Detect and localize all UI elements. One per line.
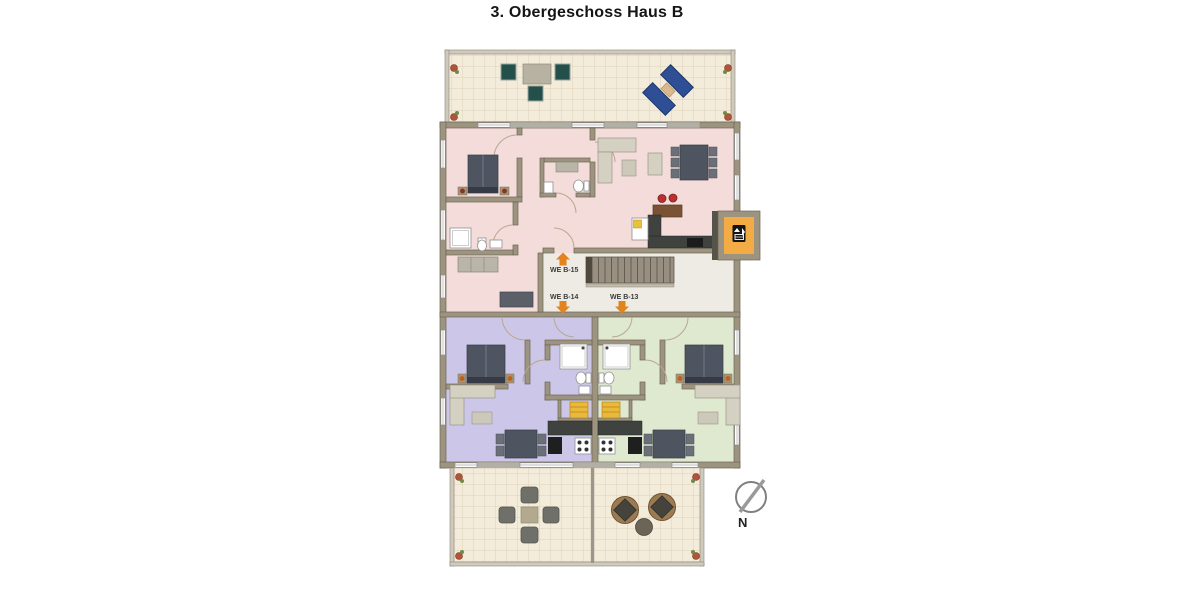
coffee-table [472,412,492,424]
stair-railing [586,284,674,287]
stove [687,238,703,247]
sofa [598,138,636,152]
kitchen-counter [548,421,592,435]
terrace-wall [731,50,735,125]
stairs [586,257,674,283]
floor-plan: WE B-15 WE B-14 WE B-13 [0,0,1200,600]
laundry [602,402,620,418]
terrace-wall [445,50,449,125]
fridge [548,437,562,454]
bar-stool [658,195,666,203]
washbasin [600,386,611,394]
kitchen-counter [648,236,722,248]
stove [599,438,615,454]
dresser [500,292,533,307]
floor-plan-page: 3. Obergeschoss Haus B [0,0,1200,600]
toilet [584,181,589,191]
bar-stool [669,194,677,202]
sofa [450,385,495,398]
north-label: N [738,515,747,530]
balcony-divider [591,468,594,563]
bathtub [450,228,471,248]
terrace-wall [445,50,735,54]
fridge [628,437,642,454]
dining-table [680,145,708,180]
coffee-table [622,160,636,176]
laundry [570,402,588,418]
toilet [586,373,591,383]
dining-table [505,430,537,458]
balconies [450,468,704,566]
side-table [636,519,653,536]
unit-label-we-b-14: WE B-14 [550,294,579,301]
elevator [712,211,760,260]
kitchen-counter [598,421,642,435]
washbasin [579,386,590,394]
sofa [598,152,612,183]
stairwell [586,257,674,287]
armchair [648,153,662,175]
balcony-right-floor [594,468,700,563]
washer [556,162,578,172]
coffee-table [698,412,718,424]
elevator-icon [733,225,746,242]
toilet [599,373,604,383]
washbasin [544,182,553,193]
unit-label-we-b-15: WE B-15 [550,267,579,274]
unit-label-we-b-13: WE B-13 [610,294,639,301]
washbasin [490,240,502,248]
roof-terrace [445,50,735,125]
wardrobe [458,257,498,272]
dining-table [653,430,685,458]
stove [575,438,591,454]
compass: N [736,480,766,530]
sofa [695,385,740,398]
